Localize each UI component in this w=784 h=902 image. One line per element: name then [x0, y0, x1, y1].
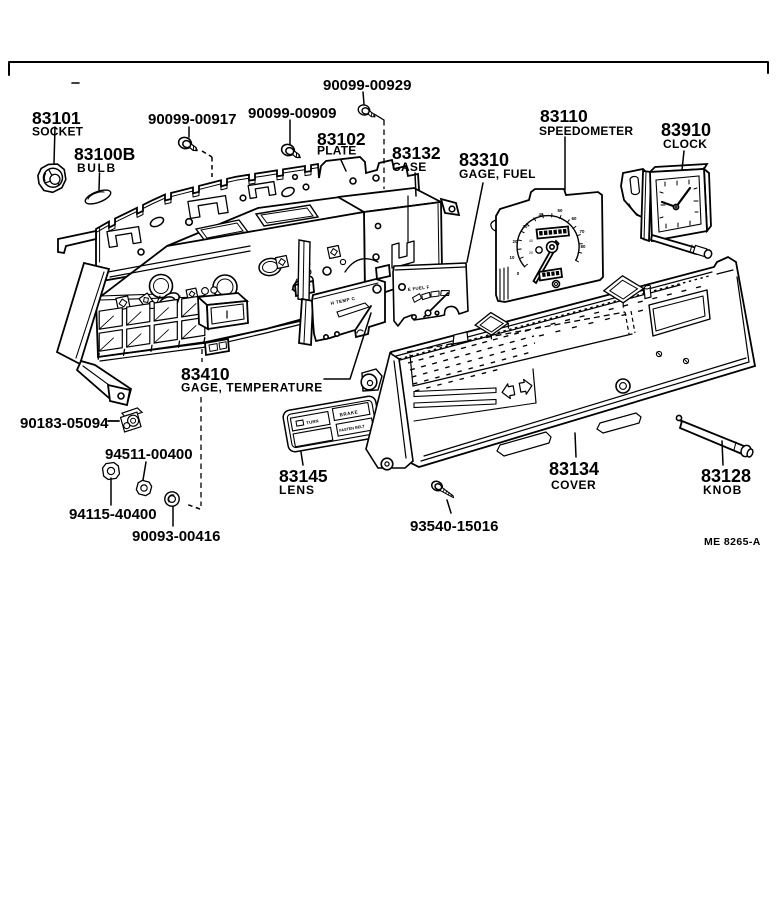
svg-text:KNOB: KNOB [703, 483, 742, 497]
svg-text:90099-00929: 90099-00929 [323, 77, 411, 94]
svg-text:LENS: LENS [279, 483, 315, 497]
svg-text:60: 60 [572, 216, 577, 221]
svg-text:94511-00400: 94511-00400 [105, 446, 193, 463]
svg-text:CASE: CASE [392, 160, 427, 174]
svg-text:10: 10 [510, 255, 515, 260]
svg-text:40: 40 [529, 239, 533, 243]
svg-text:SPEEDOMETER: SPEEDOMETER [539, 124, 633, 138]
svg-text:PLATE: PLATE [317, 144, 356, 158]
svg-text:SOCKET: SOCKET [32, 125, 84, 139]
svg-text:94115-40400: 94115-40400 [69, 506, 157, 523]
svg-text:90093-00416: 90093-00416 [132, 528, 220, 545]
svg-text:93540-15016: 93540-15016 [410, 518, 498, 535]
svg-text:BULB: BULB [77, 161, 117, 175]
svg-text:50: 50 [558, 208, 563, 213]
svg-text:COVER: COVER [551, 478, 596, 492]
svg-text:90099-00917: 90099-00917 [148, 111, 236, 128]
svg-text:40: 40 [539, 212, 544, 217]
svg-text:GAGE, TEMPERATURE: GAGE, TEMPERATURE [181, 381, 323, 395]
svg-text:20: 20 [529, 251, 533, 255]
svg-text:80: 80 [581, 244, 586, 249]
svg-text:CLOCK: CLOCK [663, 137, 707, 151]
svg-text:90183-05094: 90183-05094 [20, 415, 109, 432]
svg-text:20: 20 [513, 239, 518, 244]
svg-text:83134: 83134 [549, 459, 599, 479]
svg-text:30: 30 [523, 224, 528, 229]
svg-text:70: 70 [580, 229, 585, 234]
svg-text:90099-00909: 90099-00909 [248, 105, 336, 122]
svg-text:ME 8265-A: ME 8265-A [704, 536, 761, 548]
svg-text:83110: 83110 [540, 106, 588, 126]
svg-text:GAGE, FUEL: GAGE, FUEL [459, 167, 536, 181]
